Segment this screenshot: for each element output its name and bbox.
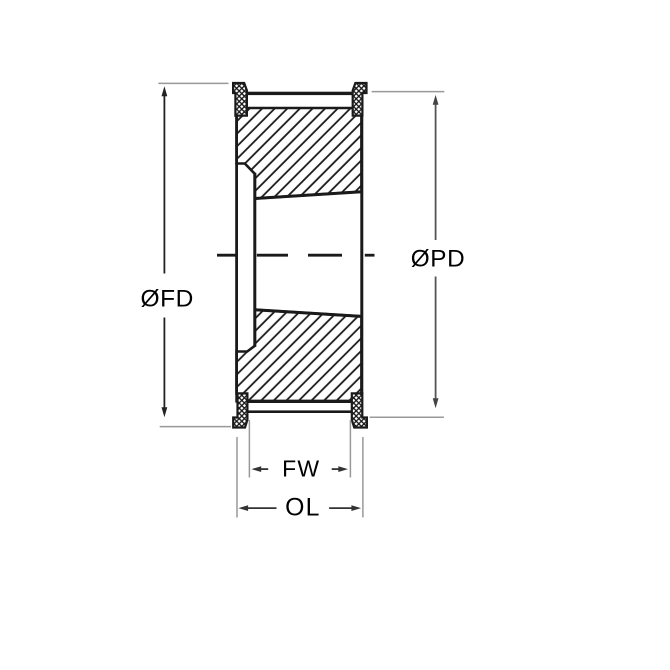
svg-text:FW: FW [282,456,320,482]
svg-text:ØFD: ØFD [140,286,194,313]
svg-text:OL: OL [285,495,320,522]
svg-text:ØPD: ØPD [411,245,465,272]
